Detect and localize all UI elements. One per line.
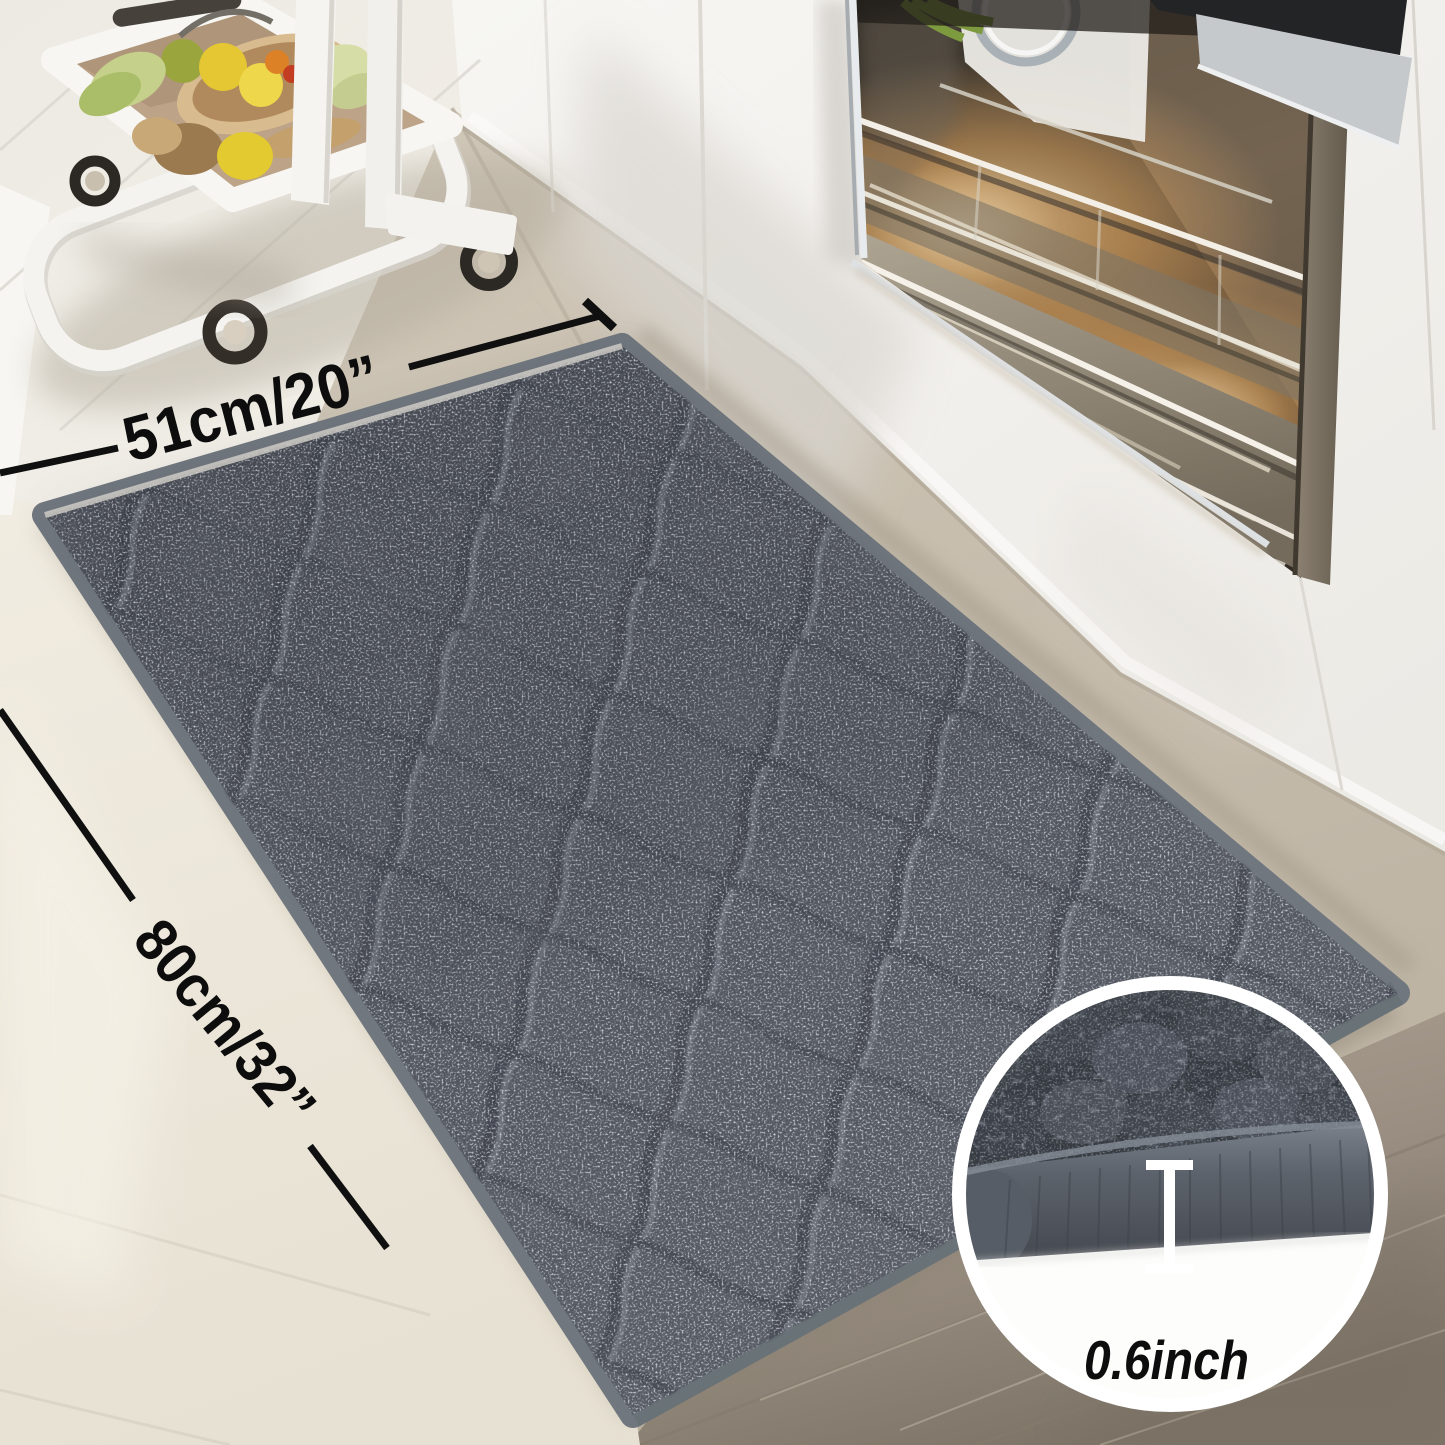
svg-text:0.6inch: 0.6inch — [1084, 1329, 1249, 1391]
